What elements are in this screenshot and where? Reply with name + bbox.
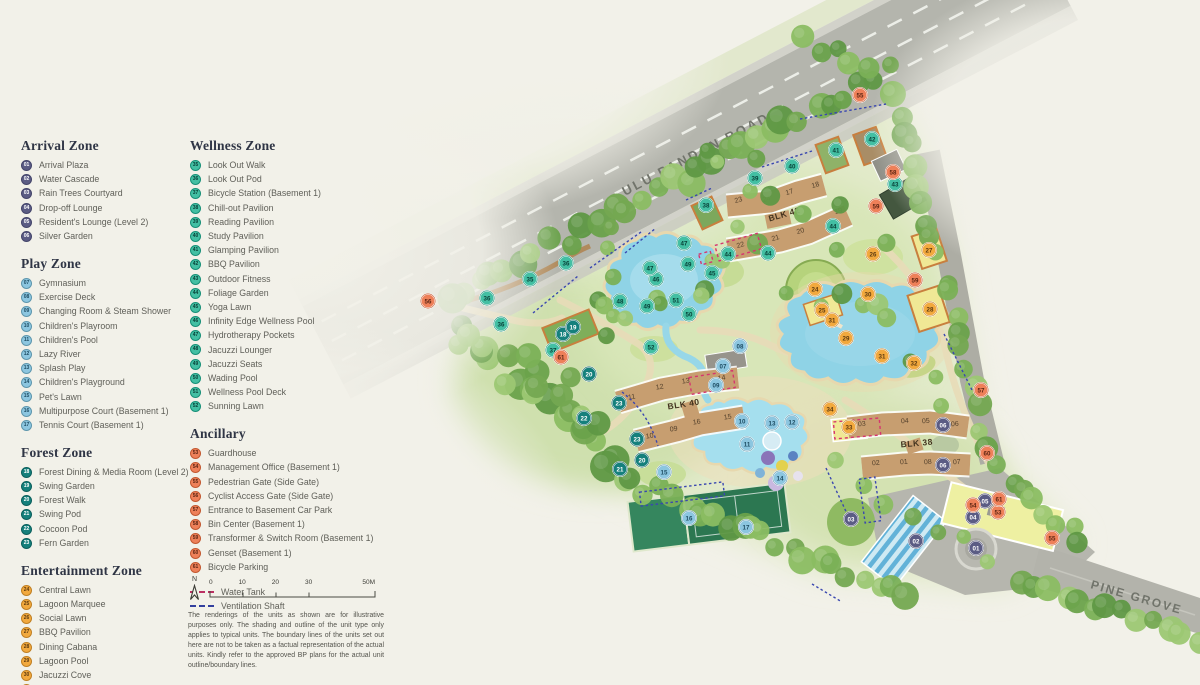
map-marker-13: 13: [765, 416, 779, 430]
svg-text:27: 27: [926, 247, 933, 254]
legend-marker-icon: 41: [190, 245, 201, 256]
legend-marker-icon: 22: [21, 524, 32, 535]
legend-zone-ancillary: Ancillary53Guardhouse54Management Office…: [190, 426, 390, 573]
svg-text:07: 07: [720, 363, 727, 370]
legend-item: 45Yoga Lawn: [190, 302, 390, 313]
svg-text:45: 45: [709, 270, 716, 277]
legend-item-label: Genset (Basement 1): [208, 549, 292, 558]
legend-item: 04Drop-off Lounge: [21, 203, 189, 214]
svg-text:55: 55: [1049, 535, 1056, 542]
unit-number: 01: [900, 459, 908, 467]
unit-number: 11: [628, 393, 636, 401]
legend-item: 19Swing Garden: [21, 481, 189, 492]
map-marker-29: 29: [839, 331, 853, 345]
legend-item-label: Changing Room & Steam Shower: [39, 307, 171, 316]
svg-text:13: 13: [769, 420, 776, 427]
legend-item-label: Bin Center (Basement 1): [208, 520, 305, 529]
svg-text:32: 32: [911, 360, 918, 367]
legend-marker-icon: 59: [190, 533, 201, 544]
legend-zone-play: Play Zone07Gymnasium08Exercise Deck09Cha…: [21, 256, 189, 431]
legend-item-label: Swing Garden: [39, 482, 95, 491]
map-marker-36: 36: [559, 256, 573, 270]
svg-text:23: 23: [616, 400, 623, 407]
unit-number: 03: [858, 421, 866, 429]
legend-item: 58Bin Center (Basement 1): [190, 519, 390, 530]
scale-tick-label: 20: [272, 579, 279, 586]
legend-item: 41Glamping Pavilion: [190, 245, 390, 256]
map-marker-06: 06: [936, 418, 950, 432]
svg-text:23: 23: [634, 436, 641, 443]
map-marker-47: 47: [677, 236, 691, 250]
map-marker-10: 10: [735, 414, 749, 428]
legend-marker-icon: 20: [21, 495, 32, 506]
legend-marker-icon: 26: [21, 613, 32, 624]
legend-zone-arrival: Arrival Zone01Arrival Plaza02Water Casca…: [21, 138, 189, 242]
svg-text:43: 43: [892, 181, 899, 188]
scale-tick-label: 0: [209, 579, 213, 586]
legend-zone-entertainment: Entertainment Zone24Central Lawn25Lagoon…: [21, 563, 189, 685]
legend-marker-icon: 09: [21, 306, 32, 317]
map-marker-12: 12: [785, 415, 799, 429]
legend-item-label: Reading Pavilion: [208, 218, 274, 227]
legend-item: 03Rain Trees Courtyard: [21, 188, 189, 199]
legend-item-label: Swing Pod: [39, 510, 81, 519]
legend-item-label: Jacuzzi Seats: [208, 360, 262, 369]
map-marker-49: 49: [681, 257, 695, 271]
svg-text:50: 50: [686, 311, 693, 318]
legend-zone-title: Ancillary: [190, 426, 390, 442]
legend-marker-icon: 47: [190, 330, 201, 341]
map-marker-19: 19: [566, 320, 580, 334]
legend-item: 30Jacuzzi Cove: [21, 670, 189, 681]
legend-item-label: Tennis Court (Basement 1): [39, 421, 144, 430]
legend-item-label: Infinity Edge Wellness Pool: [208, 317, 314, 326]
legend-item: 05Resident's Lounge (Level 2): [21, 217, 189, 228]
legend-marker-icon: 05: [21, 217, 32, 228]
legend-item-label: Hydrotherapy Pockets: [208, 331, 295, 340]
unit-number: 04: [901, 418, 909, 426]
svg-text:29: 29: [843, 335, 850, 342]
legend-item: 12Lazy River: [21, 349, 189, 360]
legend-zone-title: Arrival Zone: [21, 138, 189, 154]
legend-marker-icon: 51: [190, 387, 201, 398]
svg-text:19: 19: [570, 324, 577, 331]
map-marker-59: 59: [908, 273, 922, 287]
legend-marker-icon: 27: [21, 627, 32, 638]
legend-marker-icon: 61: [190, 562, 201, 573]
legend-item: 11Children's Pool: [21, 335, 189, 346]
svg-text:61: 61: [996, 496, 1003, 503]
legend-marker-icon: 30: [21, 670, 32, 681]
legend-marker-icon: 21: [21, 509, 32, 520]
legend-item-label: BBQ Pavilion: [208, 260, 260, 269]
map-marker-26: 26: [866, 247, 880, 261]
legend-item-label: Look Out Walk: [208, 161, 265, 170]
legend-marker-icon: 46: [190, 316, 201, 327]
svg-text:52: 52: [648, 344, 655, 351]
unit-number: 06: [951, 421, 959, 429]
legend-zone-title: Forest Zone: [21, 445, 189, 461]
legend-item-label: Pedestrian Gate (Side Gate): [208, 478, 319, 487]
unit-number: 07: [953, 459, 961, 467]
svg-text:36: 36: [563, 260, 570, 267]
svg-text:31: 31: [879, 353, 886, 360]
legend-marker-icon: 13: [21, 363, 32, 374]
legend-marker-icon: 42: [190, 259, 201, 270]
legend-item-label: Children's Pool: [39, 336, 98, 345]
map-marker-03: 03: [844, 512, 858, 526]
legend-item-label: Jacuzzi Lounger: [208, 346, 272, 355]
legend-item-label: Cocoon Pod: [39, 525, 87, 534]
legend-item-label: Resident's Lounge (Level 2): [39, 218, 148, 227]
legend-item-label: Glamping Pavilion: [208, 246, 279, 255]
legend-item: 27BBQ Pavilion: [21, 627, 189, 638]
legend-marker-icon: 40: [190, 231, 201, 242]
map-marker-11: 11: [740, 437, 754, 451]
legend-marker-icon: 49: [190, 359, 201, 370]
svg-text:20: 20: [639, 457, 646, 464]
legend-item-label: Forest Dining & Media Room (Level 2): [39, 468, 189, 477]
unit-number: 16: [692, 418, 701, 426]
legend-item-label: Management Office (Basement 1): [208, 463, 340, 472]
svg-text:34: 34: [827, 406, 834, 413]
map-marker-23: 23: [612, 396, 626, 410]
legend-item-label: Bicycle Station (Basement 1): [208, 189, 321, 198]
legend-marker-icon: 17: [21, 420, 32, 431]
map-marker-33: 33: [842, 420, 856, 434]
legend-marker-icon: 37: [190, 188, 201, 199]
map-marker-44: 44: [721, 247, 735, 261]
map-marker-60: 60: [980, 446, 994, 460]
legend-item: 47Hydrotherapy Pockets: [190, 330, 390, 341]
svg-text:02: 02: [913, 538, 920, 545]
legend-item-label: Children's Playground: [39, 378, 125, 387]
scale-tick-label: 50M: [362, 579, 375, 586]
svg-text:44: 44: [830, 223, 837, 230]
svg-text:06: 06: [940, 422, 947, 429]
map-marker-49: 49: [640, 299, 654, 313]
svg-text:06: 06: [940, 462, 947, 469]
legend-item-label: Central Lawn: [39, 586, 91, 595]
svg-text:49: 49: [644, 303, 651, 310]
legend-item: 10Children's Playroom: [21, 321, 189, 332]
svg-text:04: 04: [970, 514, 977, 521]
legend-item-label: Jacuzzi Cove: [39, 671, 91, 680]
legend-item: 15Pet's Lawn: [21, 391, 189, 402]
scale-tick-label: 10: [239, 579, 246, 586]
legend-column-2: Wellness Zone35Look Out Walk36Look Out P…: [190, 138, 390, 615]
svg-text:46: 46: [653, 276, 660, 283]
map-marker-28: 28: [923, 302, 937, 316]
unit-number: 02: [872, 460, 880, 468]
map-marker-22: 22: [577, 411, 591, 425]
legend-item: 59Transformer & Switch Room (Basement 1): [190, 533, 390, 544]
svg-text:09: 09: [713, 382, 720, 389]
map-marker-48: 48: [613, 294, 627, 308]
unit-number: 15: [723, 413, 732, 421]
svg-text:05: 05: [982, 498, 989, 505]
map-marker-40: 40: [785, 159, 799, 173]
map-marker-08: 08: [733, 339, 747, 353]
legend-item: 07Gymnasium: [21, 278, 189, 289]
map-marker-61: 61: [554, 350, 568, 364]
legend-item-label: Drop-off Lounge: [39, 204, 102, 213]
unit-number: 10: [645, 432, 654, 440]
legend-item: 18Forest Dining & Media Room (Level 2): [21, 467, 189, 478]
map-marker-14: 14: [773, 471, 787, 485]
svg-text:36: 36: [498, 321, 505, 328]
svg-text:56: 56: [425, 298, 432, 305]
svg-text:55: 55: [857, 92, 864, 99]
svg-text:03: 03: [848, 516, 855, 523]
map-marker-36: 36: [494, 317, 508, 331]
legend-item: 48Jacuzzi Lounger: [190, 344, 390, 355]
legend-marker-icon: 02: [21, 174, 32, 185]
svg-text:08: 08: [737, 343, 744, 350]
map-marker-07: 07: [716, 359, 730, 373]
svg-text:60: 60: [984, 450, 991, 457]
svg-text:48: 48: [617, 298, 624, 305]
legend-item-label: Entrance to Basement Car Park: [208, 506, 332, 515]
legend-item: 52Sunning Lawn: [190, 401, 390, 412]
svg-text:47: 47: [681, 240, 688, 247]
legend-item-label: Water Cascade: [39, 175, 99, 184]
legend-item-label: Lagoon Pool: [39, 657, 88, 666]
legend-marker-icon: 55: [190, 477, 201, 488]
legend-marker-icon: 07: [21, 278, 32, 289]
svg-text:15: 15: [661, 469, 668, 476]
legend-item: 14Children's Playground: [21, 377, 189, 388]
legend-marker-icon: 06: [21, 231, 32, 242]
legend-item: 35Look Out Walk: [190, 160, 390, 171]
unit-number: 05: [922, 418, 930, 426]
svg-text:57: 57: [978, 387, 985, 394]
legend-marker-icon: 58: [190, 519, 201, 530]
map-marker-44: 44: [826, 219, 840, 233]
legend-marker-icon: 57: [190, 505, 201, 516]
svg-text:18: 18: [560, 331, 567, 338]
map-marker-47: 47: [643, 261, 657, 275]
svg-text:47: 47: [647, 265, 654, 272]
map-marker-17: 17: [739, 520, 753, 534]
map-marker-35: 35: [523, 272, 537, 286]
legend-marker-icon: 28: [21, 642, 32, 653]
legend-item: 39Reading Pavilion: [190, 217, 390, 228]
legend-zone-title: Entertainment Zone: [21, 563, 189, 579]
svg-text:20: 20: [586, 371, 593, 378]
map-marker-24: 24: [808, 282, 822, 296]
legend-item: 50Wading Pool: [190, 373, 390, 384]
legend-item: 01Arrival Plaza: [21, 160, 189, 171]
map-marker-34: 34: [823, 402, 837, 416]
svg-text:14: 14: [777, 475, 784, 482]
scale-and-disclaimer: N 010203050M The renderings of the units…: [188, 576, 384, 678]
legend-item-label: BBQ Pavilion: [39, 628, 91, 637]
svg-text:30: 30: [865, 291, 872, 298]
svg-text:28: 28: [927, 306, 934, 313]
legend-item: 42BBQ Pavilion: [190, 259, 390, 270]
north-arrow-icon: [188, 584, 201, 601]
scale-line: [209, 590, 376, 599]
map-marker-31: 31: [875, 349, 889, 363]
scale-bar: N 010203050M: [188, 576, 384, 601]
svg-text:36: 36: [484, 295, 491, 302]
legend-item: 08Exercise Deck: [21, 292, 189, 303]
legend-item-label: Sunning Lawn: [208, 402, 264, 411]
legend-item-label: Silver Garden: [39, 232, 93, 241]
map-marker-52: 52: [644, 340, 658, 354]
legend-item-label: Gymnasium: [39, 279, 86, 288]
legend-item: 36Look Out Pod: [190, 174, 390, 185]
legend-item-label: Outdoor Fitness: [208, 275, 271, 284]
map-marker-02: 02: [909, 534, 923, 548]
legend-item-label: Yoga Lawn: [208, 303, 251, 312]
svg-text:39: 39: [752, 175, 759, 182]
legend-item: 06Silver Garden: [21, 231, 189, 242]
svg-text:59: 59: [873, 203, 880, 210]
legend-item: 24Central Lawn: [21, 585, 189, 596]
legend-item: 54Management Office (Basement 1): [190, 462, 390, 473]
legend-item-label: Dining Cabana: [39, 643, 97, 652]
svg-text:61: 61: [558, 354, 565, 361]
legend-item: 40Study Pavilion: [190, 231, 390, 242]
legend-item-label: Rain Trees Courtyard: [39, 189, 123, 198]
legend-item: 29Lagoon Pool: [21, 656, 189, 667]
legend-marker-icon: 43: [190, 274, 201, 285]
svg-text:49: 49: [685, 261, 692, 268]
legend-item: 57Entrance to Basement Car Park: [190, 505, 390, 516]
legend-item: 26Social Lawn: [21, 613, 189, 624]
legend-marker-icon: 16: [21, 406, 32, 417]
legend-item: 20Forest Walk: [21, 495, 189, 506]
map-marker-55: 55: [1045, 531, 1059, 545]
legend-item: 16Multipurpose Court (Basement 1): [21, 406, 189, 417]
scale-ruler: 010203050M: [209, 579, 384, 601]
svg-text:44: 44: [725, 251, 732, 258]
north-indicator: N: [188, 576, 201, 601]
legend-item-label: Guardhouse: [208, 449, 256, 458]
legend-item-label: Children's Playroom: [39, 322, 117, 331]
legend-column-1: Arrival Zone01Arrival Plaza02Water Casca…: [21, 138, 189, 685]
scale-tick-label: 30: [305, 579, 312, 586]
legend-item-label: Splash Play: [39, 364, 85, 373]
legend-zone-wellness: Wellness Zone35Look Out Walk36Look Out P…: [190, 138, 390, 412]
legend-item: 55Pedestrian Gate (Side Gate): [190, 477, 390, 488]
legend-item-label: Social Lawn: [39, 614, 86, 623]
svg-text:31: 31: [829, 317, 836, 324]
legend-marker-icon: 44: [190, 288, 201, 299]
legend-marker-icon: 01: [21, 160, 32, 171]
map-marker-01: 01: [969, 541, 983, 555]
legend-marker-icon: 60: [190, 548, 201, 559]
legend-item: 56Cyclist Access Gate (Side Gate): [190, 491, 390, 502]
legend-marker-icon: 50: [190, 373, 201, 384]
legend-marker-icon: 25: [21, 599, 32, 610]
map-marker-59: 59: [869, 199, 883, 213]
legend-marker-icon: 39: [190, 217, 201, 228]
legend-marker-icon: 53: [190, 448, 201, 459]
legend-zone-title: Play Zone: [21, 256, 189, 272]
map-marker-27: 27: [922, 243, 936, 257]
svg-text:38: 38: [703, 202, 710, 209]
svg-text:35: 35: [527, 276, 534, 283]
svg-text:16: 16: [686, 515, 693, 522]
legend-item: 25Lagoon Marquee: [21, 599, 189, 610]
map-marker-20: 20: [635, 453, 649, 467]
svg-text:54: 54: [970, 502, 977, 509]
legend-item: 13Splash Play: [21, 363, 189, 374]
map-marker-15: 15: [657, 465, 671, 479]
legend-item: 17Tennis Court (Basement 1): [21, 420, 189, 431]
map-marker-09: 09: [709, 378, 723, 392]
legend-item: 21Swing Pod: [21, 509, 189, 520]
legend-item: 23Fern Garden: [21, 538, 189, 549]
legend-item: 46Infinity Edge Wellness Pool: [190, 316, 390, 327]
svg-text:01: 01: [973, 545, 980, 552]
map-marker-38: 38: [699, 198, 713, 212]
legend-marker-icon: 18: [21, 467, 32, 478]
svg-text:40: 40: [789, 163, 796, 170]
legend-marker-icon: 24: [21, 585, 32, 596]
legend-marker-icon: 14: [21, 377, 32, 388]
svg-text:25: 25: [819, 307, 826, 314]
legend-item: 43Outdoor Fitness: [190, 274, 390, 285]
legend-marker-icon: 54: [190, 462, 201, 473]
legend-marker-icon: 56: [190, 491, 201, 502]
map-marker-56: 56: [421, 294, 435, 308]
legend-marker-icon: 12: [21, 349, 32, 360]
legend-item: 51Wellness Pool Deck: [190, 387, 390, 398]
legend-item-label: Arrival Plaza: [39, 161, 88, 170]
legend-item-label: Lagoon Marquee: [39, 600, 106, 609]
map-marker-57: 57: [974, 383, 988, 397]
map-marker-53: 53: [991, 505, 1005, 519]
map-marker-55: 55: [853, 88, 867, 102]
svg-text:24: 24: [812, 286, 819, 293]
map-marker-44: 44: [761, 246, 775, 260]
legend-marker-icon: 10: [21, 321, 32, 332]
legend-item-label: Fern Garden: [39, 539, 89, 548]
legend-item-label: Wading Pool: [208, 374, 258, 383]
legend-item: 37Bicycle Station (Basement 1): [190, 188, 390, 199]
map-marker-23: 23: [630, 432, 644, 446]
svg-text:58: 58: [890, 169, 897, 176]
svg-text:59: 59: [912, 277, 919, 284]
svg-text:17: 17: [743, 524, 750, 531]
legend-marker-icon: 36: [190, 174, 201, 185]
legend-item-label: Multipurpose Court (Basement 1): [39, 407, 169, 416]
legend-item-label: Look Out Pod: [208, 175, 262, 184]
legend-item-label: Wellness Pool Deck: [208, 388, 286, 397]
disclaimer-text: The renderings of the units as shown are…: [188, 611, 384, 671]
legend-item: 44Foliage Garden: [190, 288, 390, 299]
legend-marker-icon: 08: [21, 292, 32, 303]
unit-number: 09: [669, 425, 678, 433]
svg-text:10: 10: [739, 418, 746, 425]
map-marker-51: 51: [669, 293, 683, 307]
svg-text:26: 26: [870, 251, 877, 258]
map-marker-50: 50: [682, 307, 696, 321]
legend-marker-icon: 38: [190, 203, 201, 214]
map-marker-42: 42: [865, 132, 879, 146]
legend-item-label: Study Pavilion: [208, 232, 264, 241]
map-marker-39: 39: [748, 171, 762, 185]
legend-item-label: Pet's Lawn: [39, 393, 82, 402]
svg-text:41: 41: [833, 147, 840, 154]
legend-marker-icon: 03: [21, 188, 32, 199]
legend-item-label: Transformer & Switch Room (Basement 1): [208, 534, 373, 543]
svg-text:21: 21: [617, 466, 624, 473]
